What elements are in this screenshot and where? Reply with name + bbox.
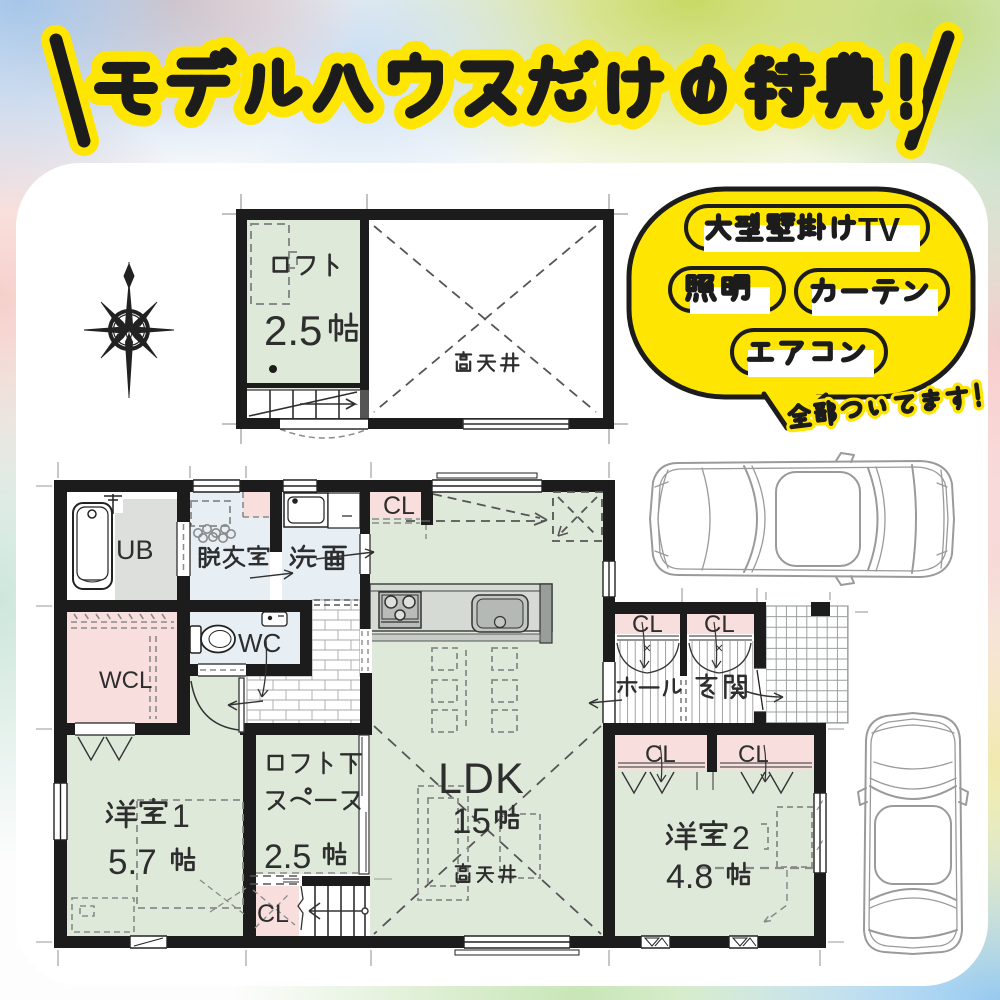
svg-text:CL: CL [645, 741, 676, 768]
svg-text:1: 1 [172, 798, 190, 834]
svg-text:WCL: WCL [99, 667, 152, 694]
svg-text:TV: TV [858, 211, 900, 248]
svg-text:UB: UB [116, 535, 154, 565]
svg-text:WC: WC [238, 628, 281, 658]
svg-text:CL: CL [738, 741, 769, 768]
svg-text:CL: CL [704, 611, 735, 638]
svg-text:2: 2 [732, 820, 750, 856]
svg-text:15: 15 [452, 802, 491, 841]
svg-text:CL: CL [257, 900, 289, 928]
svg-text:2.5: 2.5 [264, 838, 311, 876]
svg-text:LDK: LDK [438, 755, 525, 803]
svg-text:CL: CL [632, 611, 663, 638]
svg-text:5.7: 5.7 [108, 843, 157, 882]
svg-text:2.5: 2.5 [264, 307, 322, 354]
svg-text:4.8: 4.8 [666, 858, 713, 896]
svg-text:CL: CL [383, 492, 415, 520]
